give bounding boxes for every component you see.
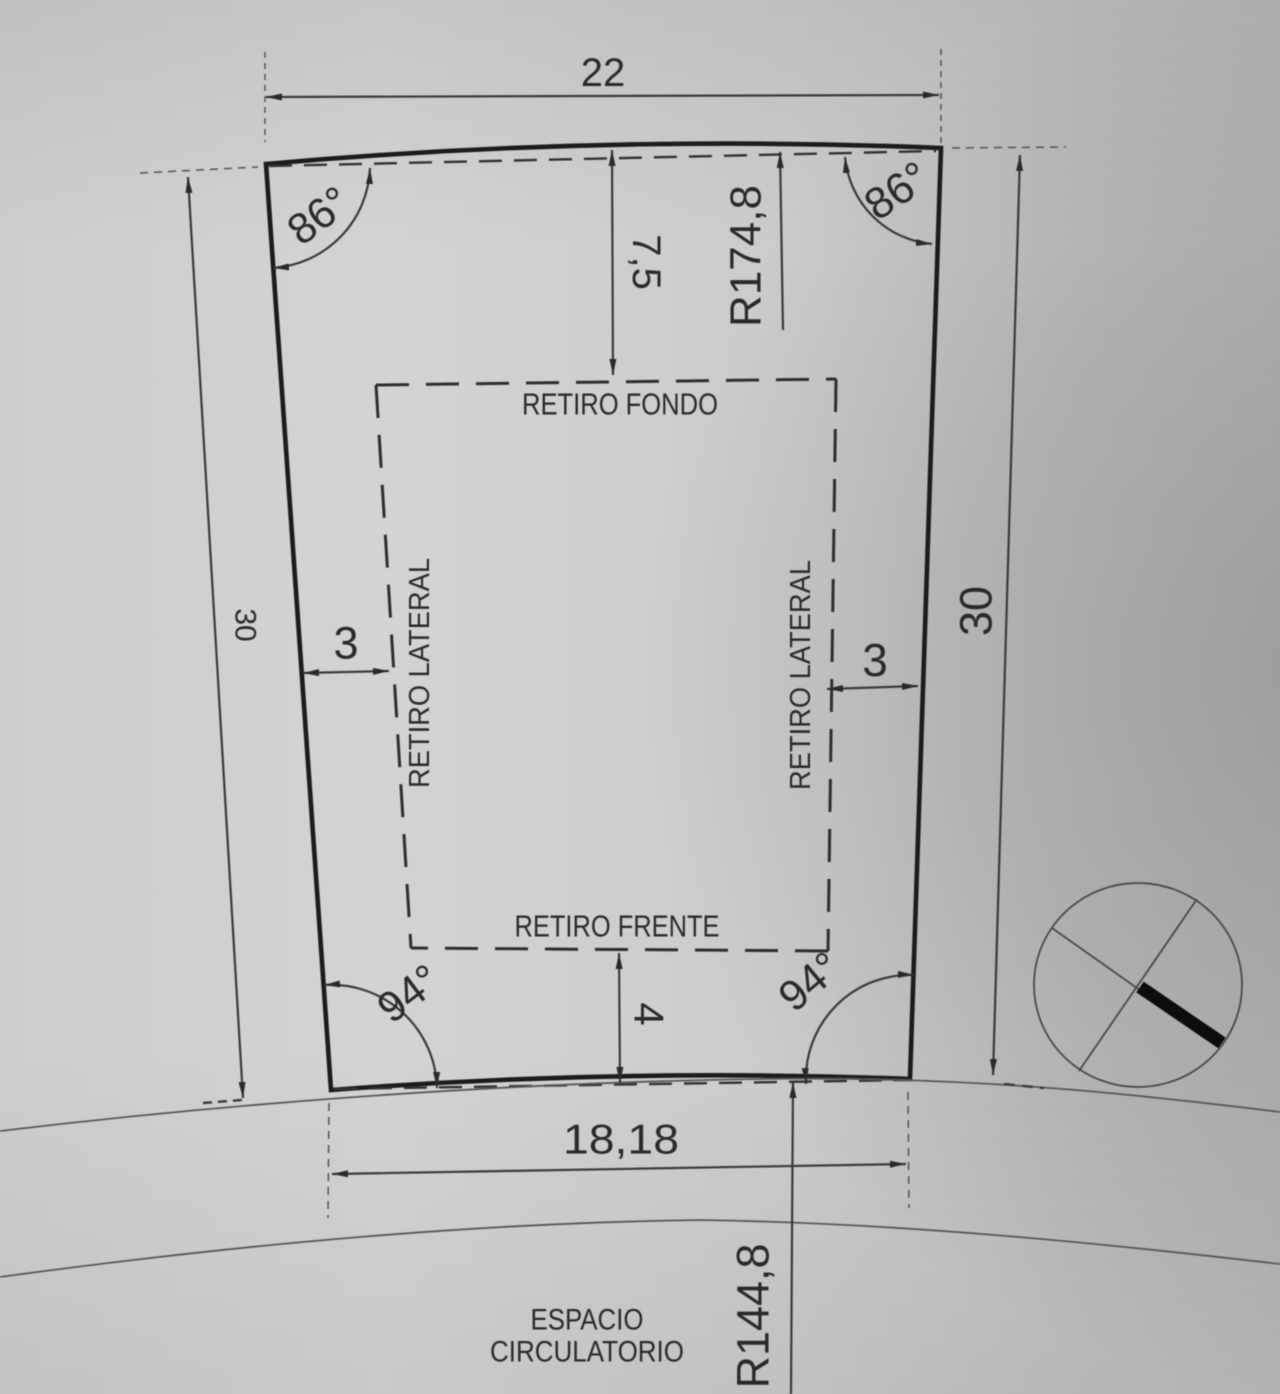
svg-text:RETIRO LATERAL: RETIRO LATERAL: [785, 560, 817, 790]
svg-text:R174,8: R174,8: [722, 185, 771, 327]
svg-text:18,18: 18,18: [563, 1116, 679, 1163]
svg-text:ESPACIO: ESPACIO: [531, 1304, 644, 1337]
svg-text:3: 3: [862, 634, 888, 686]
svg-text:30: 30: [951, 586, 1002, 636]
svg-text:30: 30: [229, 608, 262, 641]
svg-text:3: 3: [333, 618, 358, 669]
svg-text:R144,8: R144,8: [728, 1243, 779, 1388]
svg-text:RETIRO LATERAL: RETIRO LATERAL: [404, 558, 436, 788]
svg-text:RETIRO FRENTE: RETIRO FRENTE: [515, 909, 720, 944]
svg-text:RETIRO FONDO: RETIRO FONDO: [522, 387, 718, 422]
svg-text:CIRCULATORIO: CIRCULATORIO: [490, 1336, 684, 1369]
svg-text:4: 4: [626, 1002, 673, 1025]
svg-text:7,5: 7,5: [624, 234, 668, 290]
svg-text:22: 22: [581, 51, 626, 95]
